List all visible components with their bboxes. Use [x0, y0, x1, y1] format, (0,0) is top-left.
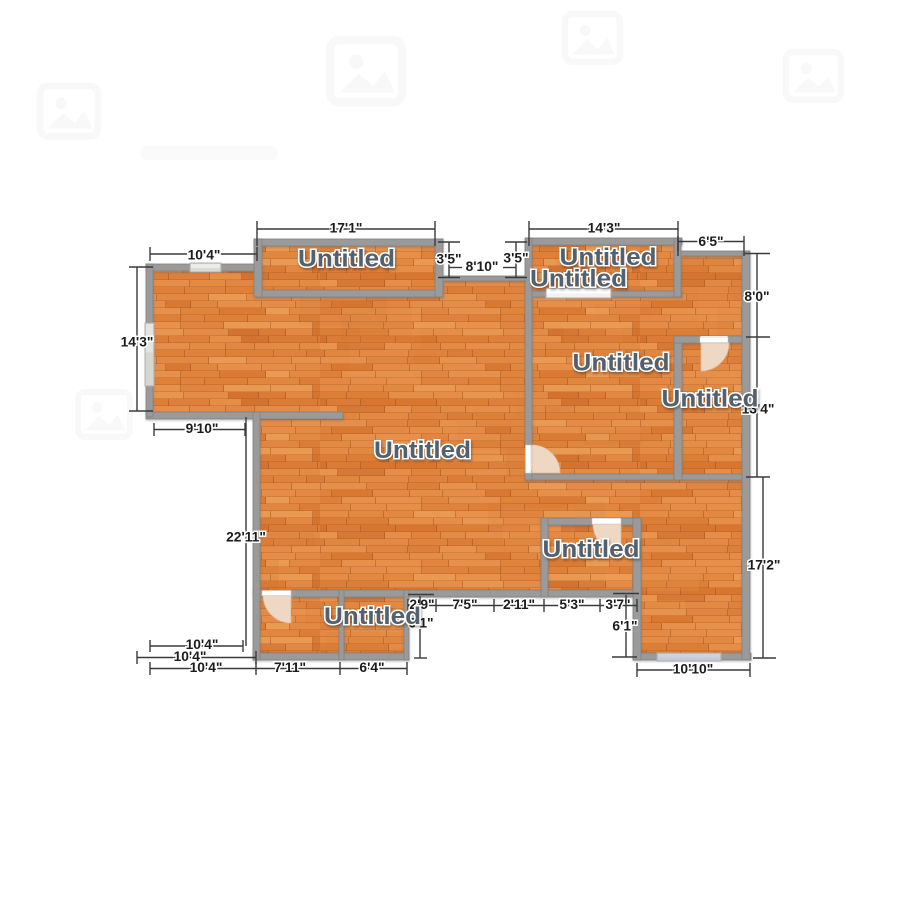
svg-text:14'3": 14'3": [588, 221, 621, 236]
svg-text:7'5": 7'5": [452, 597, 477, 612]
svg-text:10'4": 10'4": [188, 248, 221, 263]
svg-text:6'1": 6'1": [612, 619, 637, 634]
svg-text:Untitled: Untitled: [662, 385, 759, 412]
svg-text:Untitled: Untitled: [543, 536, 640, 563]
svg-text:8'0": 8'0": [744, 289, 769, 304]
svg-text:10'10": 10'10": [673, 662, 714, 677]
svg-text:9'10": 9'10": [186, 421, 219, 436]
svg-text:8'10": 8'10": [466, 259, 499, 274]
svg-text:2'11": 2'11": [503, 597, 535, 612]
svg-text:3'5": 3'5": [503, 251, 528, 266]
svg-text:Untitled: Untitled: [530, 265, 627, 292]
svg-text:7'11": 7'11": [274, 660, 306, 675]
svg-text:Untitled: Untitled: [573, 349, 670, 376]
svg-text:6'5": 6'5": [698, 234, 723, 249]
svg-text:3'7": 3'7": [605, 597, 630, 612]
svg-text:Untitled: Untitled: [374, 437, 471, 464]
svg-text:5'3": 5'3": [559, 597, 584, 612]
svg-text:22'11": 22'11": [226, 530, 266, 545]
svg-text:6'4": 6'4": [359, 660, 384, 675]
svg-text:Untitled: Untitled: [324, 603, 421, 630]
svg-text:Untitled: Untitled: [298, 245, 395, 272]
svg-text:10'4": 10'4": [190, 660, 223, 675]
svg-text:14'3": 14'3": [121, 335, 154, 350]
svg-text:17'1": 17'1": [330, 221, 363, 236]
svg-text:17'2": 17'2": [748, 558, 781, 573]
svg-text:3'5": 3'5": [436, 252, 461, 267]
